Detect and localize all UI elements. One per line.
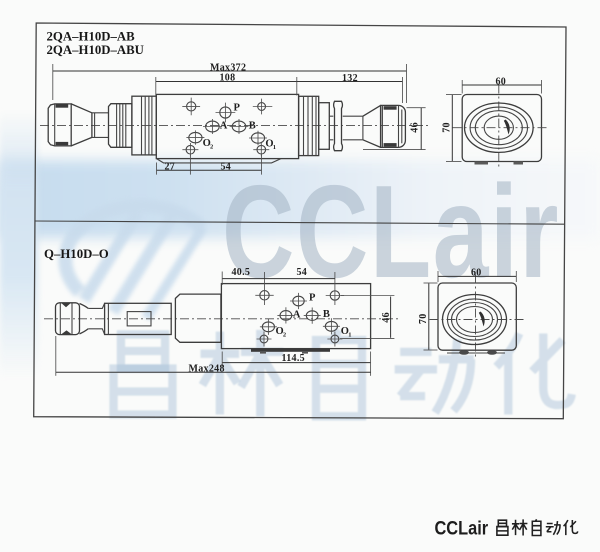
svg-text:CCLair: CCLair — [435, 517, 489, 539]
